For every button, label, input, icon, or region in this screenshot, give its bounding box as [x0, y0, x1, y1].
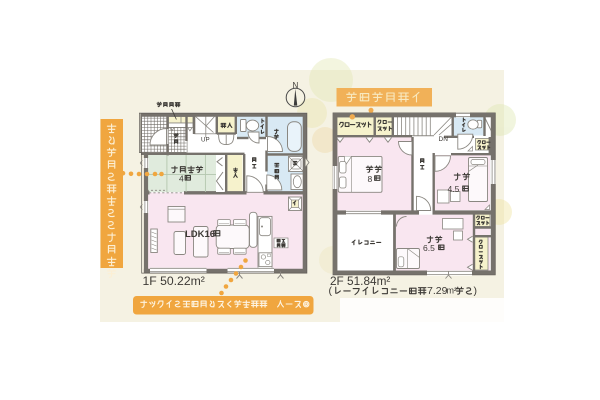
svg-text:2F 51.84m²: 2F 51.84m²: [330, 274, 390, 288]
svg-text:m²: m²: [447, 286, 458, 296]
svg-text:LDK16: LDK16: [185, 229, 215, 240]
svg-text:7.29: 7.29: [427, 285, 448, 297]
svg-text:UP: UP: [201, 137, 210, 144]
svg-text:1F 50.22m²: 1F 50.22m²: [143, 274, 205, 288]
svg-text:4.5: 4.5: [448, 184, 460, 194]
svg-text:): ): [474, 285, 478, 297]
svg-text:DN: DN: [439, 136, 449, 143]
svg-text:4: 4: [179, 174, 184, 184]
svg-text:6.5: 6.5: [423, 243, 435, 253]
svg-text:N: N: [293, 81, 299, 90]
svg-text:8: 8: [368, 174, 373, 184]
svg-text:(: (: [329, 285, 333, 297]
